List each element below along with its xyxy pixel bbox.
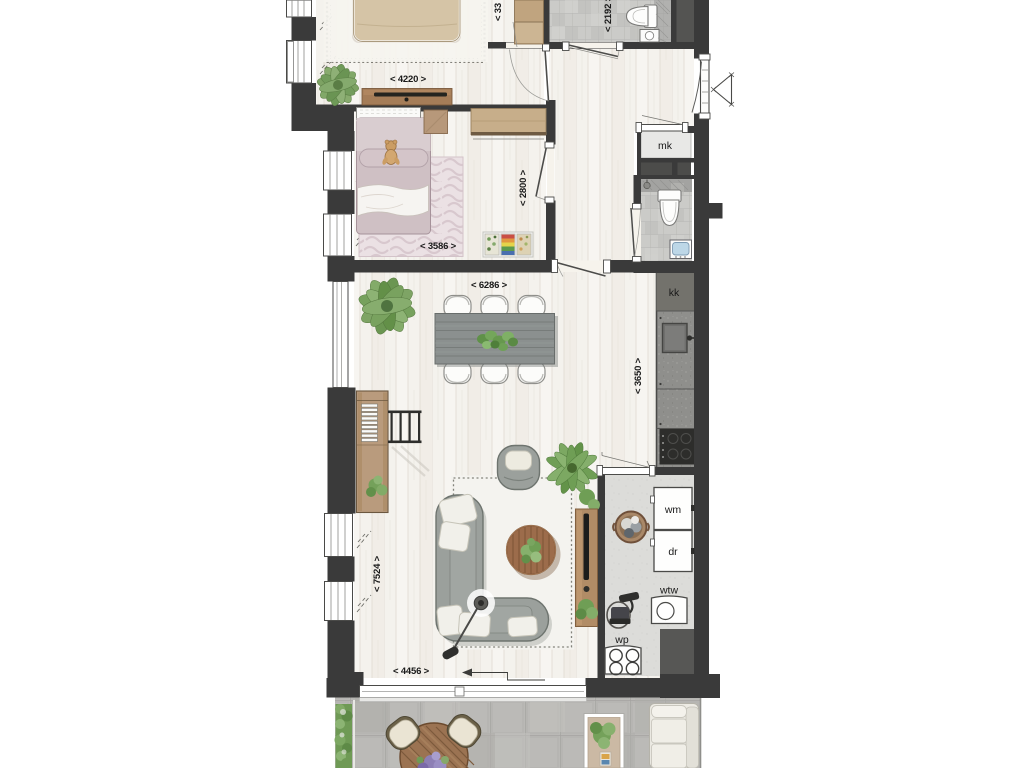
svg-text:< 2192 >: < 2192 > bbox=[603, 0, 614, 32]
svg-text:< 6286 >: < 6286 > bbox=[471, 280, 508, 291]
svg-text:dr: dr bbox=[668, 546, 678, 558]
svg-text:< 3586 >: < 3586 > bbox=[420, 241, 457, 252]
svg-text:mk: mk bbox=[658, 140, 673, 152]
svg-text:wtw: wtw bbox=[659, 585, 679, 597]
svg-text:kk: kk bbox=[669, 287, 680, 299]
svg-text:< 33: < 33 bbox=[493, 3, 504, 21]
svg-text:wp: wp bbox=[614, 634, 629, 646]
svg-text:< 3650 >: < 3650 > bbox=[633, 357, 644, 394]
svg-text:< 4220 >: < 4220 > bbox=[390, 74, 427, 85]
svg-text:wm: wm bbox=[664, 504, 682, 516]
svg-text:< 7524 >: < 7524 > bbox=[372, 555, 383, 592]
svg-text:< 4456 >: < 4456 > bbox=[393, 666, 430, 677]
svg-text:< 2800 >: < 2800 > bbox=[518, 169, 529, 206]
